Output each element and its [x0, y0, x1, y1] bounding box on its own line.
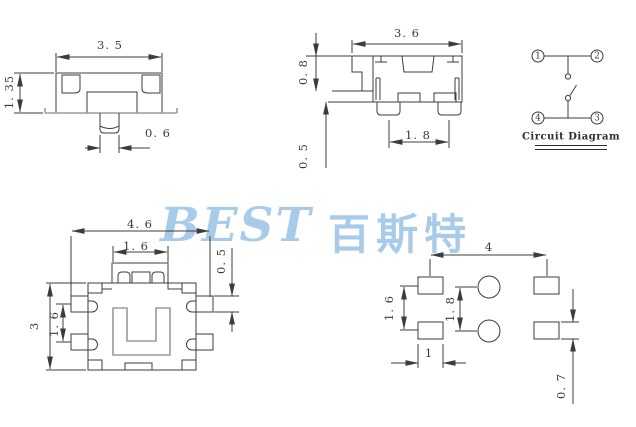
- dim-front-height: 1. 35: [2, 75, 16, 109]
- dim-side-terminal-pitch: 1. 8: [405, 128, 431, 142]
- circuit-diagram-title: Circuit Diagram: [522, 132, 620, 143]
- dim-front-stem-width: 0. 6: [145, 126, 171, 140]
- pcb-layout: [391, 255, 579, 404]
- terminal-3: 3: [591, 112, 604, 125]
- dim-top-stem-width: 1. 6: [123, 239, 149, 253]
- dim-pcb-pad-pitch: 1. 6: [382, 295, 396, 321]
- dim-side-standoff: 0. 5: [296, 143, 310, 169]
- dim-top-terminal-pitch: 1. 6: [47, 311, 61, 337]
- dim-side-width: 3. 6: [394, 26, 420, 40]
- terminal-1: 1: [532, 50, 545, 63]
- dim-top-terminal-thickness: 0. 5: [214, 248, 228, 274]
- side-view: [306, 33, 462, 168]
- terminal-4: 4: [532, 112, 545, 125]
- dim-top-width: 4. 6: [127, 217, 153, 231]
- dim-pcb-hole-pitch: 1. 8: [443, 296, 457, 322]
- dim-top-height: 3: [27, 322, 41, 330]
- circuit-diagram: [545, 56, 591, 118]
- terminal-2: 2: [591, 50, 604, 63]
- drawing-linework: [0, 0, 636, 427]
- dim-pcb-pad-span: 4: [485, 240, 493, 254]
- circuit-title-underline: [535, 145, 607, 150]
- dim-front-width: 3. 5: [97, 38, 123, 52]
- dim-pcb-pad-width: 1: [425, 346, 433, 360]
- dim-pcb-pad-height: 0. 7: [554, 373, 568, 399]
- dim-side-stem-height: 0. 8: [296, 59, 310, 85]
- drawing-sheet: BEST 百斯特: [0, 0, 636, 427]
